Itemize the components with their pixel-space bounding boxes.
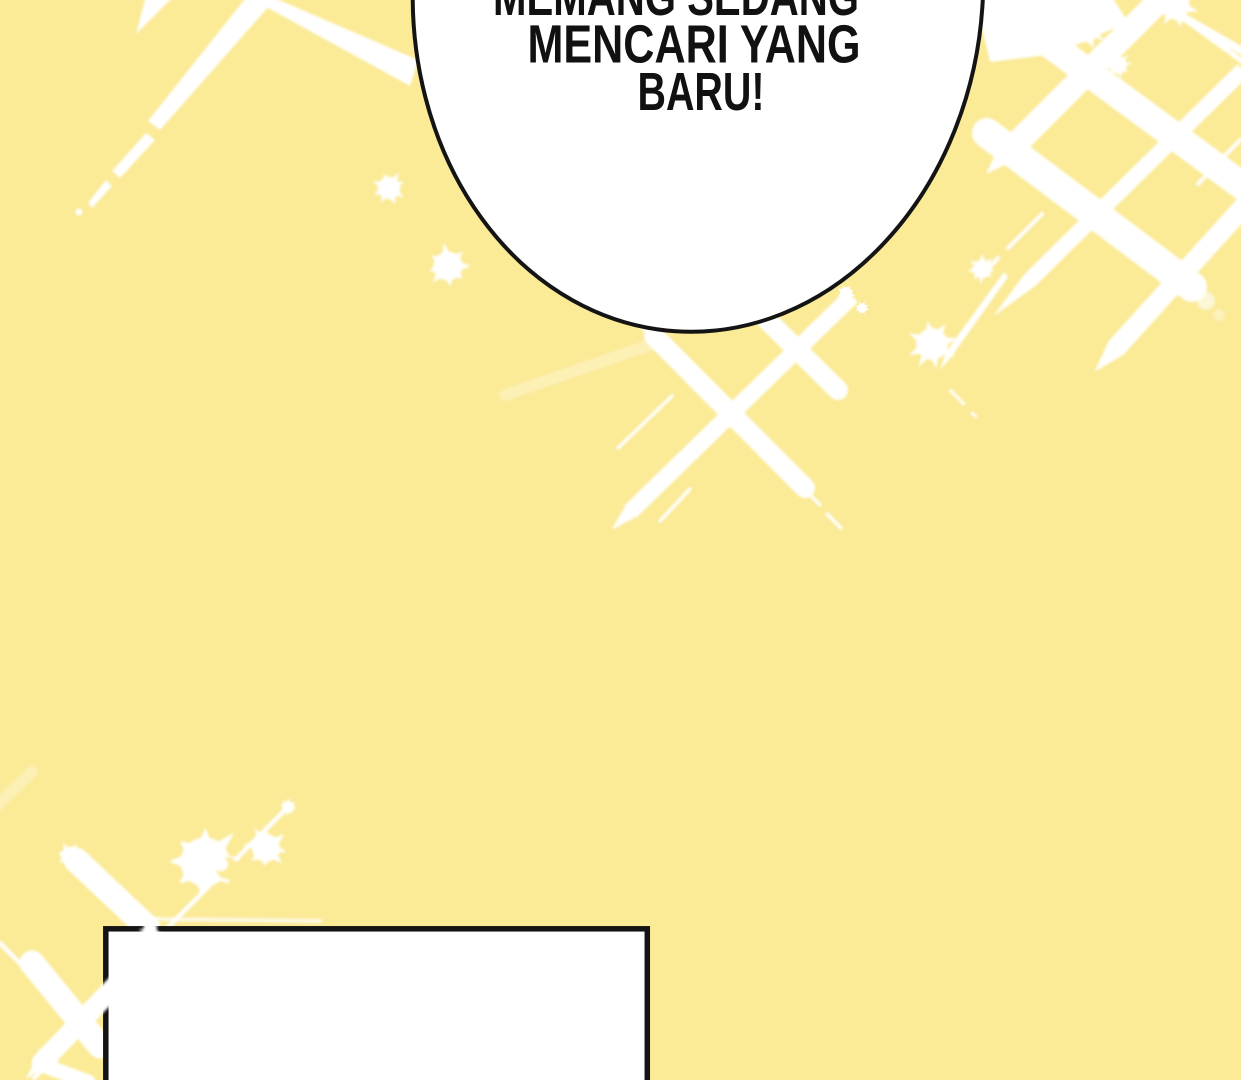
svg-text:BARU!: BARU!: [638, 63, 765, 122]
